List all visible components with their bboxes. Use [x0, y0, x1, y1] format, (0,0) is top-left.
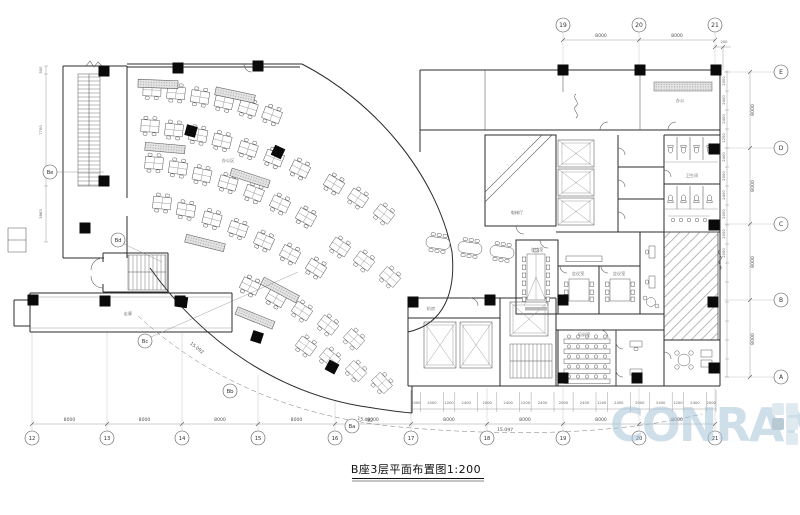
dim-label: 2400 — [462, 401, 472, 405]
watermark: CONRAN — [610, 398, 800, 452]
room-label: 会议室 — [613, 270, 626, 277]
grid-bubble-label: 12 — [29, 436, 36, 442]
dim-label: 1200 — [722, 133, 726, 143]
floor-plan-sheet: 8000 8000 200 8000 8000 8000 8000 2000 2… — [0, 0, 800, 515]
grid-bubble-label: 18 — [484, 436, 491, 442]
dim-label: 3863 — [39, 209, 43, 219]
dim-label: 1200 — [521, 401, 531, 405]
dim-label: 2000 — [483, 401, 493, 405]
grid-bubble-label: Bc — [142, 339, 149, 345]
dim-label: 2000 — [722, 248, 726, 258]
grid-bubble-label: C — [779, 221, 783, 228]
dim-label: 8000 — [214, 417, 226, 423]
dimensions-stairwell: 500 7700 3863 — [39, 66, 48, 242]
dim-label: 8000 — [750, 256, 756, 268]
watermark-logo-square — [772, 403, 784, 415]
dim-label: 2400 — [722, 152, 726, 162]
dim-label: 8000 — [750, 333, 756, 345]
grid-bubble-label: D — [779, 145, 784, 152]
dim-label: 2000 — [722, 229, 726, 239]
dim-label: 8000 — [750, 180, 756, 192]
void-hatch — [664, 232, 718, 340]
dim-label: 2000 — [559, 401, 569, 405]
dim-label: 8000 — [519, 417, 531, 423]
room-label: 办公 — [676, 97, 685, 104]
dim-label: 2400 — [580, 401, 590, 405]
grid-bubble-label: Ba — [349, 424, 356, 430]
dim-label: 2400 — [722, 114, 726, 124]
room-label: 会议室 — [572, 270, 585, 277]
conference-room-furniture — [522, 249, 549, 311]
dim-label: 8000 — [139, 417, 151, 423]
dim-label: 8000 — [671, 33, 683, 39]
dim-label: 2400 — [427, 401, 437, 405]
dim-label: 8000 — [750, 104, 756, 116]
dimensions-right: 8000 8000 8000 8000 2000 2400 2400 1200 … — [722, 70, 756, 379]
title-block: B座3层平面布置图1:200 — [351, 462, 484, 481]
lounge-meeting-tables — [425, 232, 515, 263]
grid-bubble-label: 15 — [255, 436, 262, 442]
dim-label: 2000 — [722, 209, 726, 219]
dim-label: 1200 — [444, 401, 454, 405]
grid-bubble-label: 21 — [711, 22, 719, 29]
watermark-logo-square — [786, 418, 798, 430]
watermark-logo-square — [786, 433, 798, 445]
dim-label: 2400 — [722, 95, 726, 105]
dim-label: 8000 — [595, 33, 607, 39]
drawing-title: B座3层平面布置图1:200 — [351, 462, 481, 476]
room-label: 会议室 — [531, 246, 544, 253]
lounge-furniture — [675, 350, 712, 369]
training-room-furniture — [564, 335, 610, 384]
watermark-logo-square — [772, 418, 784, 430]
grid-bubble-label: 13 — [104, 436, 111, 442]
office-strip-furniture — [643, 246, 659, 308]
grid-bubble-label: 19 — [560, 436, 567, 442]
dim-label: 2000 — [722, 171, 726, 181]
grid-bubble-label: E — [779, 69, 783, 76]
dim-label: 2400 — [722, 190, 726, 200]
dim-label: 8000 — [443, 417, 455, 423]
room-label: 电梯厅 — [511, 209, 524, 216]
top-room-counter — [654, 82, 712, 91]
grid-bubble-label: Bd — [115, 238, 122, 244]
grid-bubble-label: 20 — [635, 22, 643, 29]
grid-bubble-label: 17 — [408, 436, 415, 442]
grid-bubble-label: 14 — [179, 436, 186, 442]
dim-label: 2400 — [504, 401, 514, 405]
columns — [28, 61, 722, 384]
room-label: 卫生间 — [686, 172, 699, 179]
grid-bubble-label: 16 — [332, 436, 339, 442]
dim-label: 1000 — [411, 401, 421, 405]
dim-label: 8000 — [595, 417, 607, 423]
grid-bubble-label: Bb — [227, 389, 235, 395]
dim-label: 1200 — [597, 401, 607, 405]
floor-plan-drawing: 8000 8000 200 8000 8000 8000 8000 2000 2… — [0, 0, 800, 515]
projection-screen — [525, 307, 547, 311]
dim-label: 8000 — [64, 417, 76, 423]
fan-workstations — [141, 80, 404, 396]
dim-label: 500 — [39, 66, 43, 74]
grid-bubble-label: Be — [47, 170, 54, 176]
watermark-logo-square — [786, 403, 798, 415]
dim-label: 2000 — [722, 76, 726, 86]
room-label: 走廊 — [124, 310, 132, 317]
dim-label: 7700 — [39, 125, 43, 135]
dim-label: 8000 — [291, 417, 303, 423]
radius-label: 15.092 — [188, 341, 204, 356]
radius-label: 15.097 — [497, 427, 513, 434]
dim-label: 2400 — [538, 401, 548, 405]
grid-bubble-label: B — [779, 297, 783, 304]
grid-bubble-label: 19 — [559, 22, 567, 29]
room-label: 机房 — [427, 305, 435, 312]
dim-label: 200 — [720, 40, 728, 44]
dimensions-top: 8000 8000 200 — [561, 33, 731, 70]
room-label: 办公区 — [222, 157, 235, 164]
room-label: 培训室 — [578, 331, 591, 338]
watermark-text: CONRAN — [610, 398, 800, 452]
